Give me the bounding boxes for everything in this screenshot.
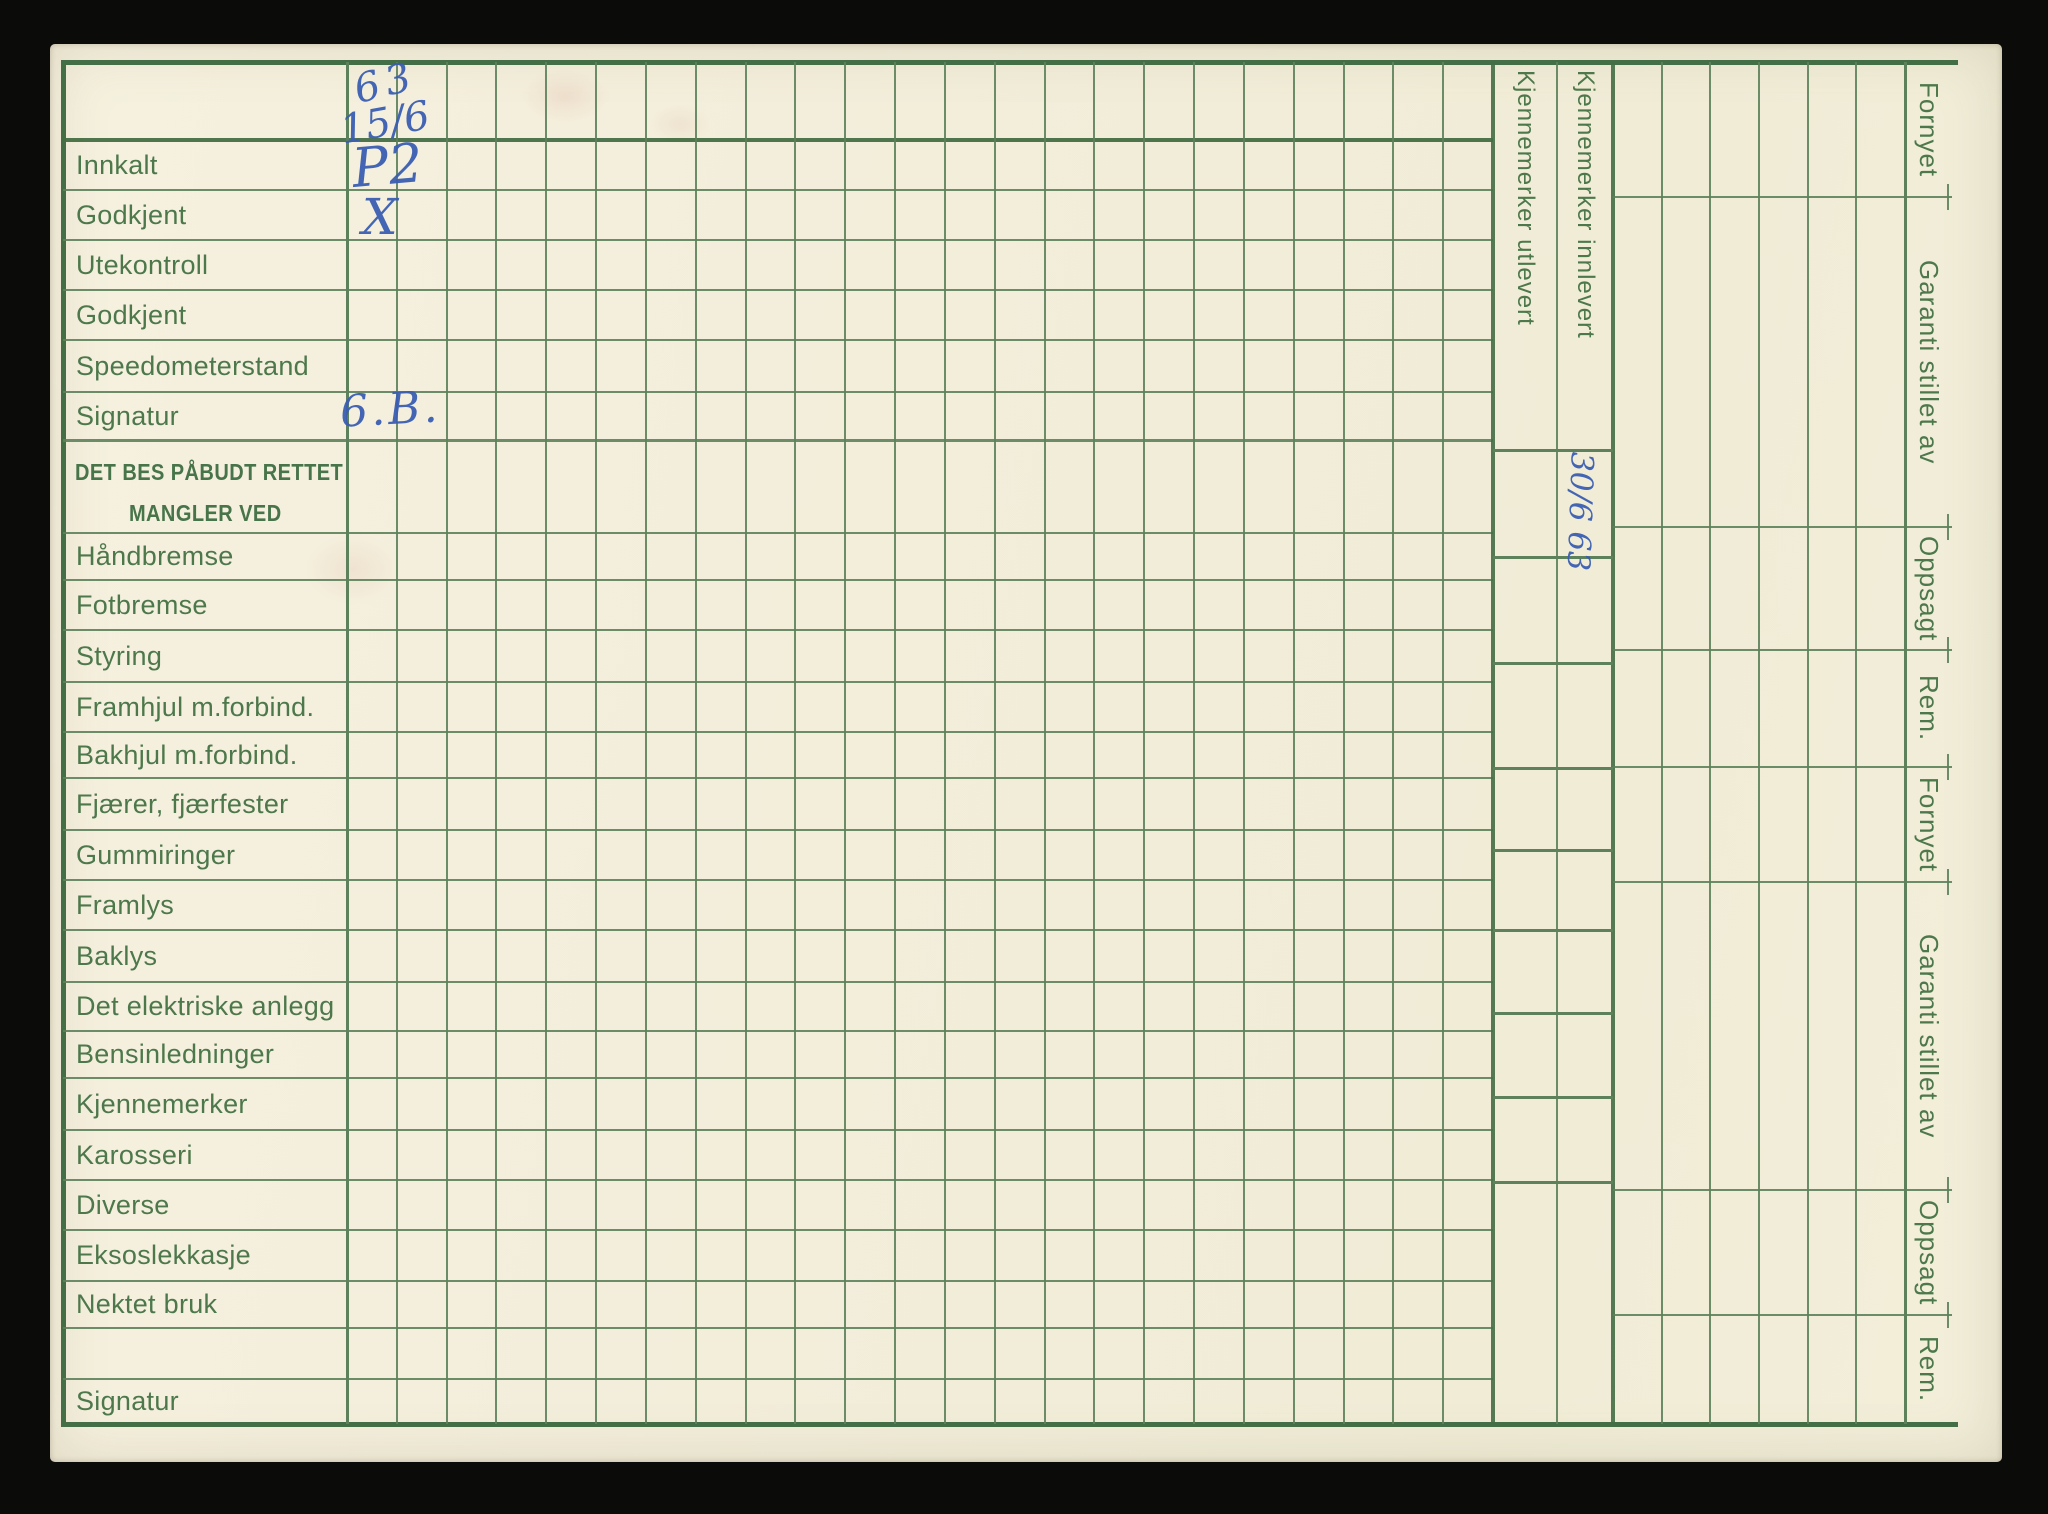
right-caption-fornyet-0: Fornyet: [1905, 62, 1952, 197]
row-label-baklys: Baklys: [76, 930, 157, 982]
plate-column-header: Kjennemerker utlevert: [1493, 70, 1557, 460]
row-label-line2: MANGLER VED: [75, 493, 343, 534]
row-label-det-bes-pabudt-rettet: DET BES PÅBUDT RETTETMANGLER VED: [75, 452, 343, 534]
paper-stain: [305, 534, 400, 604]
row-label-framlys: Framlys: [76, 880, 174, 930]
row-label-innkalt: Innkalt: [76, 140, 158, 190]
row-label-nektet-bruk: Nektet bruk: [76, 1281, 217, 1328]
row-label-line1: DET BES PÅBUDT RETTET: [75, 459, 343, 485]
row-label-godkjent: Godkjent: [76, 290, 186, 340]
plate-column-label: Kjennemerker utlevert: [1511, 70, 1539, 326]
row-label-diverse: Diverse: [76, 1180, 170, 1230]
row-label-karosseri: Karosseri: [76, 1130, 193, 1180]
handwritten-check-godkjent: X: [362, 188, 398, 246]
row-label-fotbremse: Fotbremse: [76, 580, 208, 630]
right-caption-garanti-stillet-av-1: Garanti stillet av: [1905, 197, 1952, 527]
row-label-handbremse: Håndbremse: [76, 533, 234, 580]
row-label-eksoslekkasje: Eksoslekkasje: [76, 1230, 251, 1281]
right-caption-fornyet-4: Fornyet: [1905, 767, 1952, 882]
right-caption-oppsagt-6: Oppsagt: [1905, 1190, 1952, 1315]
right-caption-garanti-stillet-av-5: Garanti stillet av: [1905, 882, 1952, 1190]
row-label-styring: Styring: [76, 630, 162, 682]
row-label-signatur: Signatur: [76, 392, 179, 440]
right-caption-label: Fornyet: [1913, 82, 1944, 177]
plate-column-label: Kjennemerker innlevert: [1571, 70, 1599, 339]
right-caption-oppsagt-2: Oppsagt: [1905, 527, 1952, 650]
row-label-framhjul-m-forbind: Framhjul m.forbind.: [76, 682, 314, 732]
right-caption-label: Oppsagt: [1913, 1200, 1944, 1305]
right-caption-label: Oppsagt: [1913, 536, 1944, 641]
row-label-utekontroll: Utekontroll: [76, 240, 208, 290]
row-label-fj-rer-fj-rfester: Fjærer, fjærfester: [76, 778, 288, 830]
handwritten-signature: 6.B.: [339, 381, 442, 437]
right-caption-label: Garanti stillet av: [1913, 260, 1944, 464]
plate-column-header: Kjennemerker innlevert: [1557, 70, 1613, 460]
row-label-gummiringer: Gummiringer: [76, 830, 235, 880]
right-caption-label: Fornyet: [1913, 777, 1944, 872]
paper-stain: [520, 69, 610, 124]
row-label-speedometerstand: Speedometerstand: [76, 340, 309, 392]
row-label-bakhjul-m-forbind: Bakhjul m.forbind.: [76, 732, 298, 778]
handwritten-plate-date: 30/6 63: [1560, 451, 1600, 560]
right-caption-label: Rem.: [1913, 675, 1944, 741]
right-caption-rem-7: Rem.: [1905, 1315, 1952, 1424]
row-label-signatur: Signatur: [76, 1379, 179, 1424]
scanned-inspection-card-page: InnkaltGodkjentUtekontrollGodkjentSpeedo…: [0, 0, 2048, 1514]
row-label-godkjent: Godkjent: [76, 190, 186, 240]
card-paper: [50, 44, 2002, 1462]
row-label-det-elektriske-anlegg: Det elektriske anlegg: [76, 982, 334, 1031]
row-label-kjennemerker: Kjennemerker: [76, 1078, 248, 1130]
paper-stain: [650, 104, 710, 144]
row-label-bensinledninger: Bensinledninger: [76, 1031, 274, 1078]
right-caption-label: Rem.: [1913, 1336, 1944, 1402]
right-caption-rem-3: Rem.: [1905, 650, 1952, 767]
right-caption-label: Garanti stillet av: [1913, 934, 1944, 1138]
